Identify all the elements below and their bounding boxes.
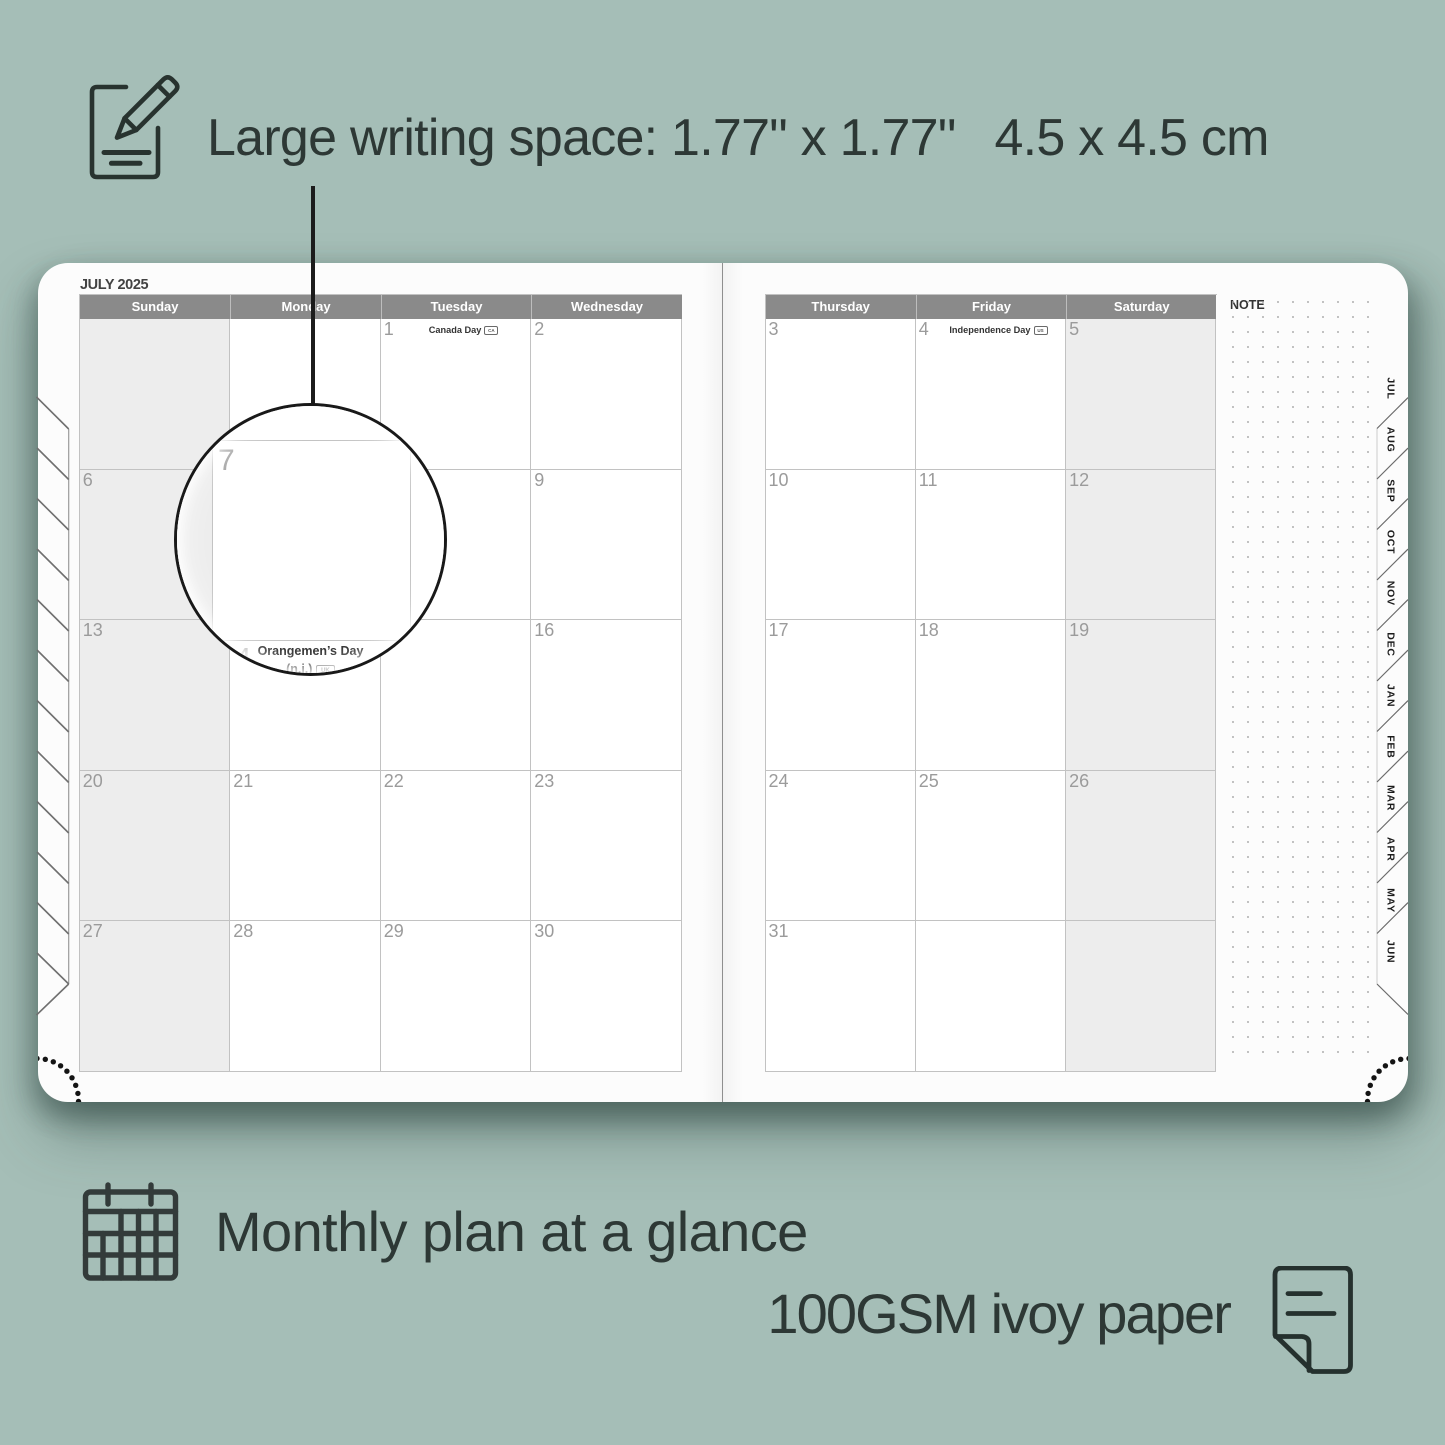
svg-text:MAY: MAY	[1385, 888, 1397, 913]
svg-text:SEP: SEP	[1385, 479, 1397, 502]
svg-text:FEB: FEB	[1385, 735, 1397, 758]
svg-text:AUG: AUG	[1385, 427, 1397, 453]
svg-text:JAN: JAN	[1385, 684, 1397, 707]
svg-text:NOV: NOV	[1385, 581, 1397, 606]
svg-text:APR: APR	[1385, 837, 1397, 862]
svg-text:JUN: JUN	[1385, 940, 1397, 963]
svg-text:DEC: DEC	[1385, 632, 1397, 657]
svg-text:OCT: OCT	[1385, 530, 1397, 555]
svg-text:JUL: JUL	[1385, 377, 1397, 399]
svg-text:MAR: MAR	[1385, 785, 1397, 811]
